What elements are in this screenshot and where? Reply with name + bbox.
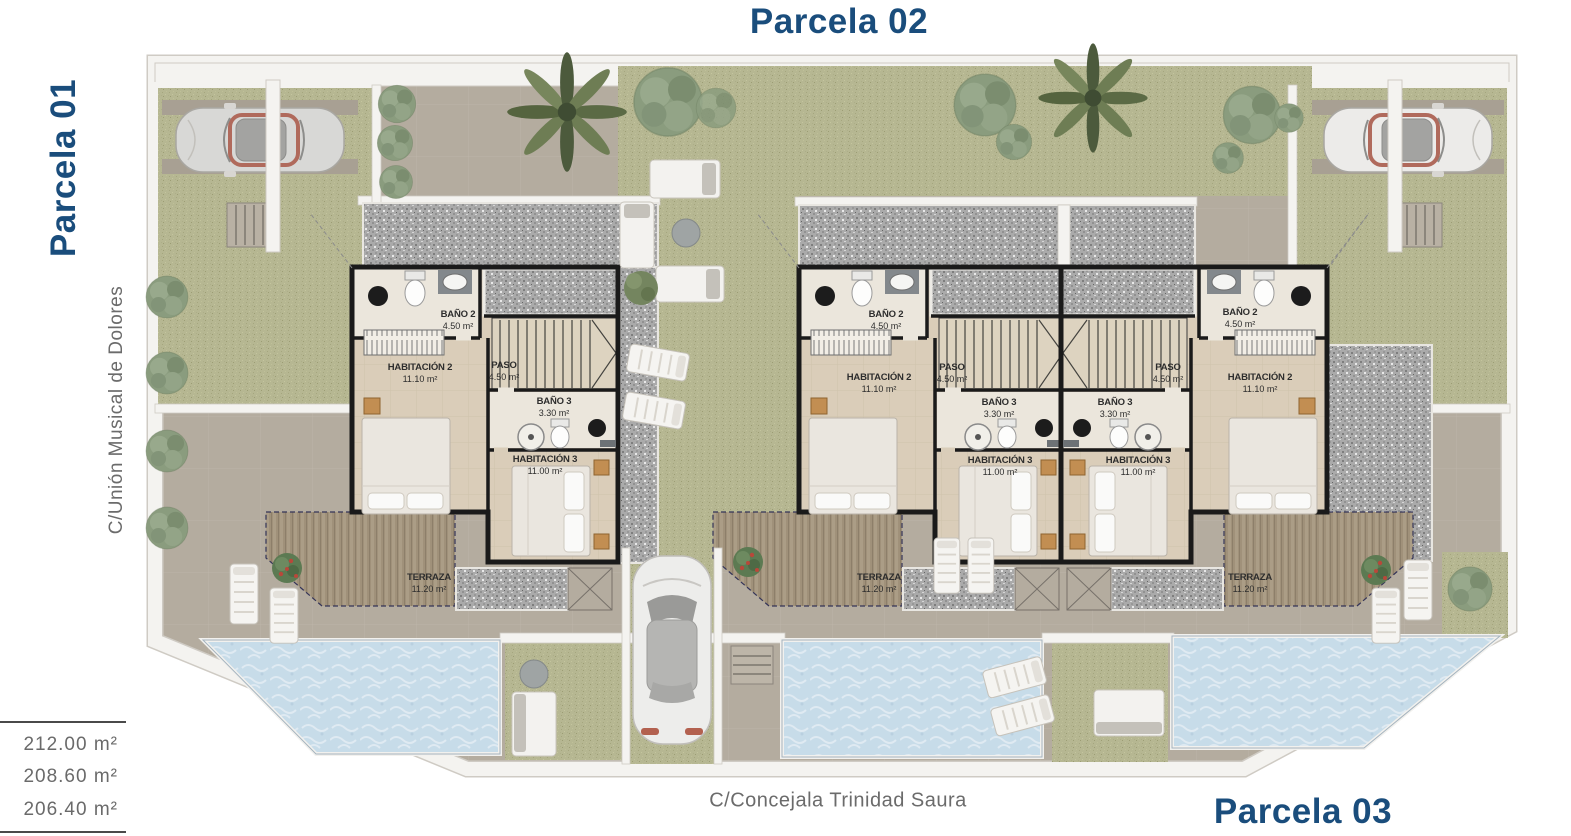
room-area-paso-v2: 4.50 m² (937, 374, 968, 384)
area-value-1: 212.00 m² (23, 734, 118, 756)
room-area-hab3-v2: 11.00 m² (983, 467, 1018, 477)
room-label-hab3-v1: HABITACIÓN 3 (513, 453, 577, 465)
area-measurements-table: 212.00 m² 208.60 m² 206.40 m² (0, 721, 126, 833)
street-label-trinidad-saura: C/Concejala Trinidad Saura (709, 790, 967, 813)
pool-right (1172, 636, 1500, 748)
room-label-hab3-v2: HABITACIÓN 3 (968, 454, 1032, 466)
room-label-hab3-v3: HABITACIÓN 3 (1106, 454, 1170, 466)
room-label-hab2-v2: HABITACIÓN 2 (847, 371, 911, 383)
room-area-paso-v3: 4.50 m² (1153, 374, 1184, 384)
site-plan-page: BAÑO 2 4.50 m² HABITACIÓN 2 11.10 m² PAS… (0, 0, 1571, 836)
room-area-hab2-v3: 11.10 m² (1243, 384, 1278, 394)
room-area-terraza-v1: 11.20 m² (412, 584, 447, 594)
area-value-2: 208.60 m² (23, 766, 118, 788)
palm-tree-icon (507, 52, 627, 172)
room-area-bano2-v3: 4.50 m² (1225, 319, 1256, 329)
pools (203, 636, 1500, 757)
site-plan: BAÑO 2 4.50 m² HABITACIÓN 2 11.10 m² PAS… (0, 0, 1571, 836)
room-area-paso-v1: 4.50 m² (489, 372, 520, 382)
room-label-paso-v2: PASO (939, 362, 964, 373)
car-bottom-center (633, 556, 711, 744)
car-top-right (1324, 103, 1492, 177)
room-area-bano2-v2: 4.50 m² (871, 321, 902, 331)
room-label-hab2-v3: HABITACIÓN 2 (1228, 371, 1292, 383)
parcela-01-title: Parcela 01 (44, 79, 84, 257)
room-area-hab2-v1: 11.10 m² (403, 374, 438, 384)
room-label-paso-v3: PASO (1155, 362, 1180, 373)
shrub-icon (272, 553, 302, 583)
pool-center (782, 640, 1042, 757)
room-area-hab3-v3: 11.00 m² (1121, 467, 1156, 477)
room-area-terraza-v2: 11.20 m² (862, 584, 897, 594)
room-area-bano3-v2: 3.30 m² (984, 409, 1015, 419)
room-label-paso-v1: PASO (491, 360, 516, 371)
room-label-bano3-v1: BAÑO 3 (537, 396, 572, 407)
parcela-02-title: Parcela 02 (750, 2, 928, 42)
room-label-bano3-v2: BAÑO 3 (982, 397, 1017, 408)
room-label-bano2-v2: BAÑO 2 (869, 309, 904, 320)
room-label-bano2-v1: BAÑO 2 (441, 309, 476, 320)
room-label-bano3-v3: BAÑO 3 (1098, 397, 1133, 408)
room-label-bano2-v3: BAÑO 2 (1223, 307, 1258, 318)
room-area-terraza-v3: 11.20 m² (1233, 584, 1268, 594)
parcela-03-title: Parcela 03 (1214, 792, 1392, 832)
pool-left (203, 640, 500, 754)
area-value-3: 206.40 m² (23, 799, 118, 821)
room-area-hab3-v1: 11.00 m² (528, 466, 563, 476)
street-label-union-musical: C/Unión Musical de Dolores (106, 286, 128, 535)
room-area-bano3-v1: 3.30 m² (539, 408, 570, 418)
tree-icon (378, 85, 415, 122)
room-label-terraza-v1: TERRAZA (407, 572, 451, 583)
room-label-terraza-v3: TERRAZA (1228, 572, 1272, 583)
room-label-terraza-v2: TERRAZA (857, 572, 901, 583)
room-area-bano3-v3: 3.30 m² (1100, 409, 1131, 419)
car-top-left (176, 103, 344, 177)
room-area-hab2-v2: 11.10 m² (862, 384, 897, 394)
room-label-hab2-v1: HABITACIÓN 2 (388, 361, 452, 373)
room-area-bano2-v1: 4.50 m² (443, 321, 474, 331)
